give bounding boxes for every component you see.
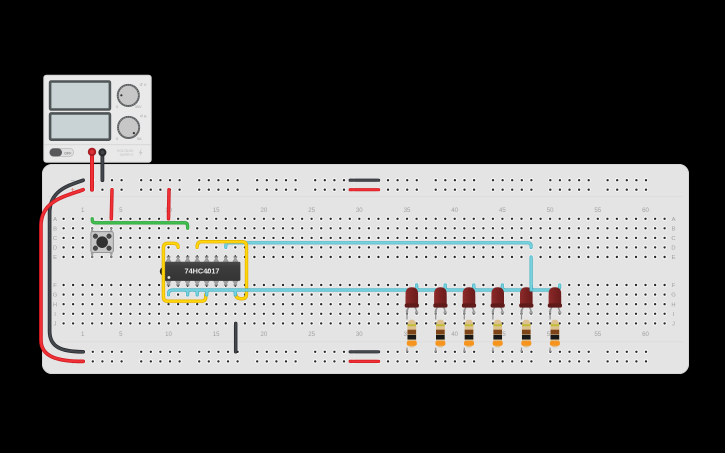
svg-text:F: F [53, 283, 57, 289]
svg-text:55: 55 [594, 331, 601, 338]
svg-text:60: 60 [642, 207, 649, 214]
svg-text:15: 15 [213, 331, 220, 338]
svg-text:J: J [672, 322, 675, 328]
svg-text:30: 30 [356, 331, 363, 338]
svg-text:40: 40 [451, 207, 458, 214]
svg-text:20: 20 [261, 331, 268, 338]
svg-text:30V: 30V [135, 105, 142, 109]
svg-text:D: D [671, 246, 675, 252]
svg-text:A: A [53, 217, 57, 223]
svg-text:F: F [672, 283, 676, 289]
svg-text:25: 25 [308, 207, 315, 214]
svg-text:74HC4017: 74HC4017 [185, 267, 220, 276]
svg-text:1: 1 [81, 207, 85, 214]
svg-text:0: 0 [116, 137, 118, 141]
svg-text:0: 0 [116, 105, 118, 109]
svg-text:10: 10 [165, 331, 172, 338]
svg-text:45: 45 [499, 207, 506, 214]
svg-text:OFF: OFF [64, 152, 72, 156]
svg-text:SUPPLY: SUPPLY [120, 153, 135, 157]
svg-text:B: B [53, 226, 57, 232]
svg-text:G: G [53, 293, 58, 299]
svg-text:↺ V: ↺ V [139, 82, 146, 87]
svg-text:↺ A: ↺ A [140, 113, 147, 118]
svg-text:G: G [671, 293, 676, 299]
svg-text:1: 1 [81, 331, 85, 338]
svg-text:J: J [54, 322, 57, 328]
svg-text:C: C [53, 236, 57, 242]
svg-text:25: 25 [308, 331, 315, 338]
svg-text:A: A [672, 217, 676, 223]
svg-text:55: 55 [594, 207, 601, 214]
svg-text:30: 30 [356, 207, 363, 214]
svg-text:40: 40 [451, 331, 458, 338]
svg-text:H: H [671, 302, 675, 308]
svg-text:E: E [672, 255, 676, 261]
svg-text:D: D [53, 246, 57, 252]
svg-text:C: C [671, 236, 675, 242]
svg-text:H: H [53, 302, 57, 308]
svg-text:50: 50 [547, 207, 554, 214]
svg-text:5A: 5A [137, 137, 142, 141]
svg-text:15: 15 [213, 207, 220, 214]
svg-text:B: B [672, 226, 676, 232]
svg-text:20: 20 [261, 207, 268, 214]
svg-text:35: 35 [404, 207, 411, 214]
svg-text:60: 60 [642, 331, 649, 338]
svg-text:E: E [53, 255, 57, 261]
